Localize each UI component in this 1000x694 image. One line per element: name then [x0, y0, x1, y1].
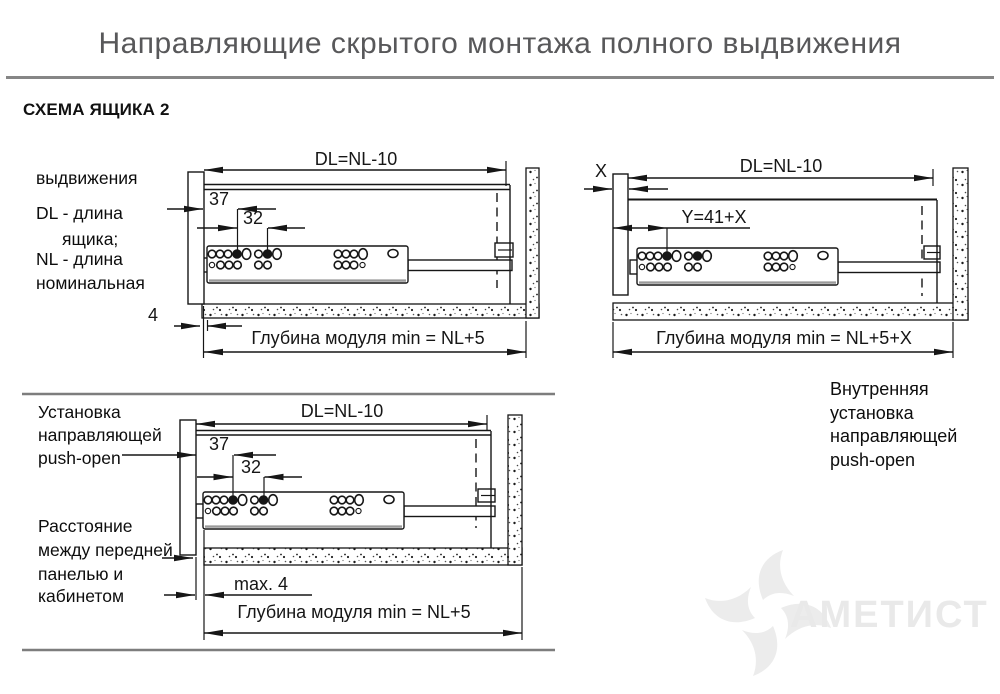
- d2-dim-dl: DL=NL-10: [628, 156, 933, 186]
- page: Направляющие скрытого монтажа полного вы…: [0, 0, 1000, 694]
- d3-dim-32-label: 32: [241, 457, 261, 477]
- diagram-top-left: DL=NL-10 37 32 4: [148, 149, 539, 358]
- d2-dim-depth: Глубина модуля min = NL+5+X: [613, 322, 953, 358]
- d1-dim-4-label: 4: [148, 305, 158, 325]
- d1-front-panel: [188, 172, 204, 304]
- d1-dim-37-label: 37: [209, 189, 229, 209]
- diagram-top-right: X DL=NL-10 Y=41+X Глубина модуля min = N…: [584, 156, 968, 358]
- d1-dim-32-label: 32: [243, 208, 263, 228]
- d2-dim-depth-label: Глубина модуля min = NL+5+X: [656, 328, 912, 348]
- d1-dim-dl: DL=NL-10: [204, 149, 506, 186]
- d3-front-panel: [180, 420, 196, 555]
- d1-dim-depth: Глубина модуля min = NL+5: [204, 321, 526, 358]
- d3-dim-dl-label: DL=NL-10: [301, 401, 384, 421]
- d3-drawer-side: [196, 431, 491, 549]
- d2-bottom-board: [613, 303, 968, 320]
- d1-drawer-side: [204, 185, 510, 305]
- d2-dim-y-label: Y=41+X: [681, 207, 746, 227]
- diagrams: DL=NL-10 37 32 4: [0, 0, 1000, 694]
- d2-slide-rail: [630, 248, 838, 285]
- d3-bottom-board: [204, 548, 522, 565]
- d2-dim-dl-label: DL=NL-10: [740, 156, 823, 176]
- d2-dim-x-label: X: [595, 161, 607, 181]
- d3-rear-bracket: [478, 489, 495, 502]
- d3-dim-depth-label: Глубина модуля min = NL+5: [237, 602, 470, 622]
- d1-slide-extension-bar: [408, 260, 512, 271]
- d3-back-panel: [508, 415, 522, 565]
- d2-back-panel: [953, 168, 968, 320]
- d3-dim-dl: DL=NL-10: [196, 401, 487, 431]
- d1-bottom-board: [202, 304, 539, 318]
- d3-dim-37-label: 37: [209, 434, 229, 454]
- d2-dim-y: Y=41+X: [613, 207, 750, 253]
- d3-dim-max4-label: max. 4: [234, 574, 288, 594]
- d3-slide-extension-bar: [404, 506, 495, 517]
- d3-dim-32: 32: [197, 457, 302, 497]
- d1-dim-32: 32: [197, 208, 305, 251]
- d3-slide-rail: [196, 492, 404, 529]
- d2-slide-extension-bar: [838, 262, 940, 273]
- d1-dim-depth-label: Глубина модуля min = NL+5: [251, 328, 484, 348]
- diagram-bottom-left: DL=NL-10 37 32 max. 4: [22, 394, 555, 650]
- d1-slide-rail: [200, 246, 408, 283]
- d2-front-panel: [613, 174, 628, 295]
- d1-dim-dl-label: DL=NL-10: [315, 149, 398, 169]
- d1-back-panel: [526, 168, 539, 318]
